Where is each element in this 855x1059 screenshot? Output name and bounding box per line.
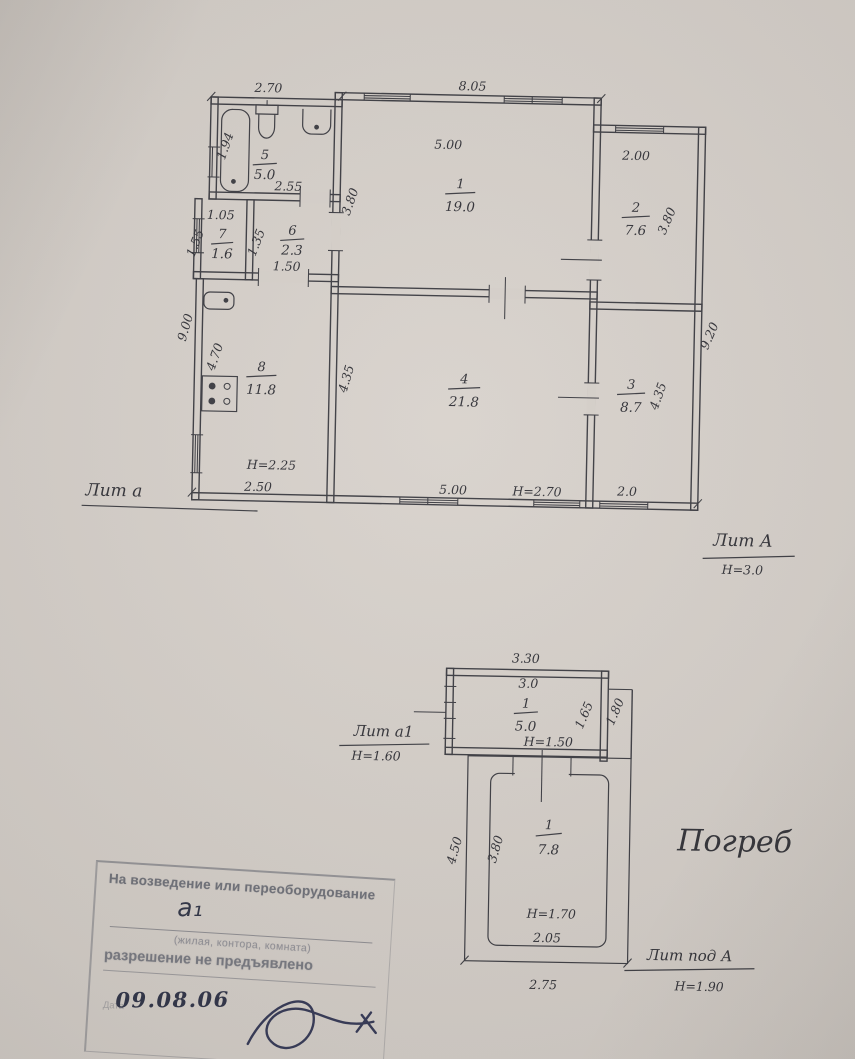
room-label-1: 1 19.0 xyxy=(445,177,476,216)
room-area: 11.8 xyxy=(246,382,277,399)
stove-icon xyxy=(202,376,238,412)
stamp-handwritten-litera: а₁ xyxy=(177,893,203,922)
litera-A-height: Н=3.0 xyxy=(721,562,764,578)
litera-a1-label: Лит а1 Н=1.60 xyxy=(339,721,430,764)
main-plan-dimensions: 2.70 8.05 5.00 3.80 2.00 3.80 9.20 1.94 … xyxy=(171,72,727,503)
room-label-8: 8 11.8 xyxy=(246,360,277,399)
dim-right-inner: 1.65 xyxy=(571,699,596,731)
room-number: 3 xyxy=(627,378,636,393)
room-area: 5.0 xyxy=(254,167,276,183)
room-number: 1 xyxy=(545,818,554,833)
dim-r4-depth: 4.35 xyxy=(335,363,357,395)
room-area: 2.3 xyxy=(280,242,303,258)
dim-r1-width: 5.00 xyxy=(434,137,462,153)
toilet-icon xyxy=(255,100,278,138)
dim-r5-width: 2.55 xyxy=(273,178,302,194)
signature xyxy=(236,983,411,1059)
cellar-plan-dimensions: 3.30 3.0 1.65 1.80 Н=1.50 4.50 3.80 Н=1.… xyxy=(441,649,628,993)
dim-outer-width: 2.75 xyxy=(528,977,557,993)
room-number: 7 xyxy=(218,227,227,242)
litera-under-A-label: Лит под А Н=1.90 xyxy=(624,945,755,994)
dim-right-outer: 1.80 xyxy=(602,696,627,728)
room-area: 7.8 xyxy=(538,842,560,858)
stamp-date-row: Дата 09.08.06 xyxy=(99,977,377,1054)
room-area: 8.7 xyxy=(620,400,642,416)
dim-r7-depth: 1.55 xyxy=(183,227,207,258)
dim-main-top: 8.05 xyxy=(458,78,486,94)
dim-r3-width: 2.0 xyxy=(616,484,637,499)
dim-r3-depth: 4.35 xyxy=(646,380,670,412)
litera-a-text: Лит а xyxy=(84,480,142,501)
litera-A-label: Лит А Н=3.0 xyxy=(702,530,795,578)
kitchen-sink-icon xyxy=(204,292,234,310)
dim-right-outer: 9.20 xyxy=(697,320,722,352)
dim-wing-top: 2.70 xyxy=(253,80,282,96)
room-label-7: 7 1.6 xyxy=(211,227,234,262)
bathtub-drain-dot xyxy=(231,179,236,184)
dim-inner-width: 2.05 xyxy=(532,930,561,946)
cellar-room-label: 1 7.8 xyxy=(535,818,562,858)
dim-r2-width: 2.00 xyxy=(621,148,650,164)
room-number: 8 xyxy=(257,360,266,375)
room-number: 1 xyxy=(456,177,465,192)
cellar-plan: 1 5.0 1 7.8 3.30 3.0 1.65 1.80 Н=1.50 4.… xyxy=(335,648,796,997)
dim-r1-depth: 3.80 xyxy=(338,186,361,217)
room-number: 5 xyxy=(261,148,270,163)
dim-cellar-height: Н=1.70 xyxy=(526,906,577,922)
room-label-6: 6 2.3 xyxy=(280,223,305,258)
dim-r4-width: 5.00 xyxy=(439,482,467,498)
entry-room-label: 1 5.0 xyxy=(513,697,538,735)
room-number: 2 xyxy=(631,201,641,216)
room-number: 6 xyxy=(288,224,297,239)
litera-a1-height: Н=1.60 xyxy=(350,748,401,764)
room-label-5: 5 5.0 xyxy=(252,148,277,183)
stamp-handwritten-date: 09.08.06 xyxy=(115,987,229,1013)
dim-r6-door: 1.50 xyxy=(273,258,301,274)
cellar-title: Погреб xyxy=(676,823,793,860)
main-plan: 5 5.0 7 1.6 6 2.3 8 11.8 1 19.0 2 7.6 xyxy=(80,70,804,578)
door-openings xyxy=(256,188,604,415)
dim-left-outer: 4.50 xyxy=(443,835,465,867)
bti-permission-stamp: На возведение или переоборудование а₁ (ж… xyxy=(84,860,395,1059)
litera-A-text: Лит А xyxy=(712,531,773,552)
room-label-2: 2 7.6 xyxy=(621,201,650,240)
sink-icon xyxy=(302,109,331,135)
scanned-floor-plan-photo: 5 5.0 7 1.6 6 2.3 8 11.8 1 19.0 2 7.6 xyxy=(0,0,855,1059)
litera-a-label: Лит а xyxy=(82,480,259,511)
dim-left-inner: 3.80 xyxy=(484,834,506,865)
room-area: 5.0 xyxy=(515,719,537,735)
dim-r4-height: Н=2.70 xyxy=(511,483,562,499)
dim-r7-width: 1.05 xyxy=(207,207,235,223)
dim-top-inner: 3.0 xyxy=(518,676,538,691)
room-area: 1.6 xyxy=(211,246,233,262)
litera-under-A-text: Лит под А xyxy=(646,946,733,966)
room-number: 1 xyxy=(522,697,531,712)
dim-r8-width: 2.50 xyxy=(243,479,272,495)
room-area: 21.8 xyxy=(448,394,480,411)
dim-left-outer: 9.00 xyxy=(174,312,196,343)
room-area: 19.0 xyxy=(445,199,476,216)
room-label-3: 3 8.7 xyxy=(617,378,646,417)
dim-r2-depth: 3.80 xyxy=(654,205,679,237)
room-area: 7.6 xyxy=(625,223,647,239)
room-number: 4 xyxy=(459,372,469,387)
litera-under-A-height: Н=1.90 xyxy=(673,978,724,994)
room-label-4: 4 21.8 xyxy=(448,372,481,411)
dim-r6-depth: 1.35 xyxy=(244,227,268,258)
litera-a1-text: Лит а1 xyxy=(353,722,414,741)
dim-r8-height: Н=2.25 xyxy=(246,457,297,473)
dim-top-outer: 3.30 xyxy=(512,650,540,665)
dim-r8-depth: 4.70 xyxy=(202,341,226,373)
dim-entry-height: Н=1.50 xyxy=(523,734,574,750)
